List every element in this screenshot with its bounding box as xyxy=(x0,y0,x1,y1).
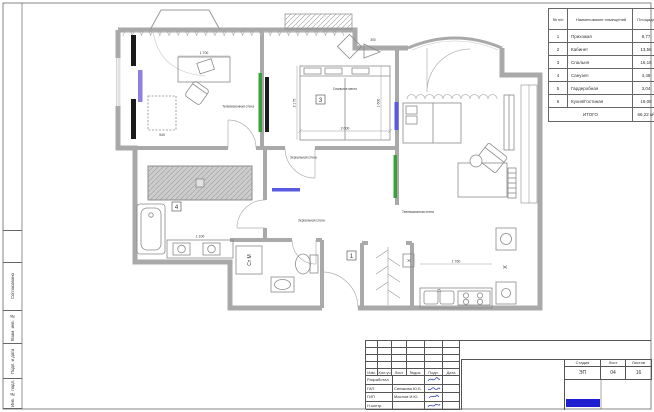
schedule-col-name: Наименование помещений xyxy=(568,9,633,30)
drawing-sheet: Телевизионная стена Телевизионная стена … xyxy=(0,0,654,412)
rev-header-dok: №док. xyxy=(407,369,425,376)
sofa xyxy=(403,103,461,143)
table-row: 5 Гардеробная 3,04 xyxy=(549,82,654,95)
pillow xyxy=(352,68,369,74)
door-entry xyxy=(322,272,358,308)
study-rack xyxy=(148,96,176,130)
left-stamp-column: Согласовано Взам. инв. № Подп. и дата Ин… xyxy=(3,230,22,409)
pillow xyxy=(325,68,342,74)
door-bedroom xyxy=(285,148,315,178)
revision-grid: Изм. Кол.уч Лист №док. Подп. Дата xyxy=(366,341,461,376)
project-name-cell xyxy=(461,341,652,360)
wardrobe-bar-3 xyxy=(265,77,269,132)
door-study xyxy=(228,120,256,148)
schedule-total-label: ИТОГО xyxy=(549,108,633,122)
study-furniture xyxy=(148,57,230,130)
desk-chair xyxy=(470,155,482,167)
titleblock-right: Стадия Лист Листов ЭП 04 16 xyxy=(461,341,652,410)
dim-300: 300 xyxy=(370,38,376,42)
shower-drain xyxy=(196,179,204,187)
role-name: Синякова Ю.Б. xyxy=(393,385,425,394)
schedule-col-area: Площадь xyxy=(633,9,654,30)
bathroom-fixtures xyxy=(137,166,252,258)
dim-desk: 1 700 xyxy=(200,51,209,55)
sheet-header: Лист xyxy=(601,359,626,367)
stamp-empty xyxy=(3,230,22,262)
wardrobe-bar-2 xyxy=(131,99,136,139)
drawing-name-cell xyxy=(461,359,564,410)
stamp-podp-data: Подп. и дата xyxy=(3,343,22,378)
room-schedule-table: № п/п Наименование помещений Площадь 1 П… xyxy=(548,8,654,122)
table-row: 1 Прихожая 8,77 xyxy=(549,30,654,43)
logo-bar xyxy=(566,399,600,407)
rev-header-koluch: Кол.уч xyxy=(378,369,392,376)
dim-room-h: 2 175 xyxy=(293,99,297,108)
signature-icon xyxy=(427,393,441,400)
stamp-vzam-inv: Взам. инв. № xyxy=(3,310,22,343)
stage-value: ЭП xyxy=(565,367,601,380)
bed-label: Спальное место xyxy=(333,87,357,91)
bedroom-wall-strip xyxy=(395,102,399,130)
rev-header-list: Лист xyxy=(392,369,407,376)
sheets-total: 16 xyxy=(626,367,652,380)
balcony-door-arc xyxy=(153,31,205,76)
door-bathroom xyxy=(237,200,265,228)
rev-header-data: Дата xyxy=(443,369,460,376)
mirror-wall-label-2: Зеркальная стена xyxy=(298,219,325,223)
dim-kitchen: 1 760 xyxy=(452,260,461,264)
dim-rack: 940 xyxy=(159,133,165,137)
schedule-total-row: ИТОГО 66,22 м² xyxy=(549,108,654,122)
tv-wall-label-living: Телевизионная стена xyxy=(402,210,434,214)
dim-vanity: 1 100 xyxy=(196,235,205,239)
wardrobe-hatch xyxy=(376,247,400,305)
dim-bed-h: 1 600 xyxy=(377,99,381,108)
slab-hatch xyxy=(285,14,352,29)
fridge-label: Х xyxy=(503,265,509,269)
kitchen-appliance xyxy=(496,282,516,304)
kitchen-fixtures xyxy=(403,228,516,308)
wc-fixtures xyxy=(236,246,318,292)
pillow xyxy=(304,68,321,74)
role-name xyxy=(393,402,425,411)
stamp-soglasovano: Согласовано xyxy=(3,262,22,310)
role-label: ГИП xyxy=(366,393,393,402)
rev-header-podp: Подп. xyxy=(425,369,443,376)
roles-grid: Разработал ГАП Синякова Ю.Б. ГИП Маслов … xyxy=(366,376,461,410)
role-name xyxy=(393,376,425,385)
curtains xyxy=(123,31,497,99)
curtain-bay xyxy=(407,95,497,100)
role-label: Разработал xyxy=(366,376,393,385)
schedule-col-num: № п/п xyxy=(549,9,568,30)
table-row: 6 Кухня/Гостиная 19,08 xyxy=(549,95,654,108)
bay-trapezoid xyxy=(150,10,220,30)
role-label: ГАП xyxy=(366,385,393,394)
role-name: Маслов И.Ю. xyxy=(393,393,425,402)
signature-icon xyxy=(427,385,441,392)
table-row: 3 Спальня 16,16 xyxy=(549,56,654,69)
sheet-number: 04 xyxy=(601,367,626,380)
table-row: 4 Санузел 4,48 xyxy=(549,69,654,82)
fridge-label-2: Х xyxy=(407,259,412,262)
door-bay xyxy=(427,48,470,92)
window-left-wall xyxy=(115,58,120,106)
toilet xyxy=(296,254,311,274)
signature-cell xyxy=(425,376,443,385)
laptop xyxy=(197,59,215,74)
dim-bed-w: 2 000 xyxy=(341,127,350,131)
mirror-wall-label-1: Зеркальная стена xyxy=(290,156,317,160)
stage-header: Стадия xyxy=(565,359,601,367)
schedule-total-value: 66,22 м² xyxy=(633,108,654,122)
table-row: 2 Кабинет 13,58 xyxy=(549,43,654,56)
cooktop xyxy=(458,291,490,305)
signature-icon xyxy=(427,376,441,383)
sheets-header: Листов xyxy=(626,359,652,367)
living-furniture xyxy=(403,85,537,203)
tv-wall-strip-living xyxy=(394,155,398,198)
signature-icon xyxy=(427,402,441,409)
plan-labels: Телевизионная стена Телевизионная стена … xyxy=(159,38,509,269)
washer-label: Ст М xyxy=(247,254,253,265)
signature-cell xyxy=(425,393,443,402)
tv-wall-strip-study xyxy=(259,73,263,132)
wardrobe-bar-1 xyxy=(131,35,136,66)
title-block: Изм. Кол.уч Лист №док. Подп. Дата Разраб… xyxy=(365,340,651,409)
signature-cell xyxy=(425,402,443,411)
signature-cell xyxy=(425,385,443,394)
stage-block: Стадия Лист Листов ЭП 04 16 xyxy=(564,359,652,410)
logo-area xyxy=(565,380,653,409)
role-label: Н.контр. xyxy=(366,402,393,411)
corridor-console xyxy=(272,188,300,192)
schedule-header-row: № п/п Наименование помещений Площадь xyxy=(549,9,654,30)
tv-wall-label-study: Телевизионная стена xyxy=(222,105,254,109)
radiator-strip xyxy=(138,70,143,102)
study-chair xyxy=(184,80,209,105)
stamp-inv-podl: Инв. № подл. xyxy=(3,378,22,409)
rev-header-izm: Изм. xyxy=(366,369,378,376)
oven xyxy=(496,228,516,250)
kitchen-sink xyxy=(424,291,438,304)
